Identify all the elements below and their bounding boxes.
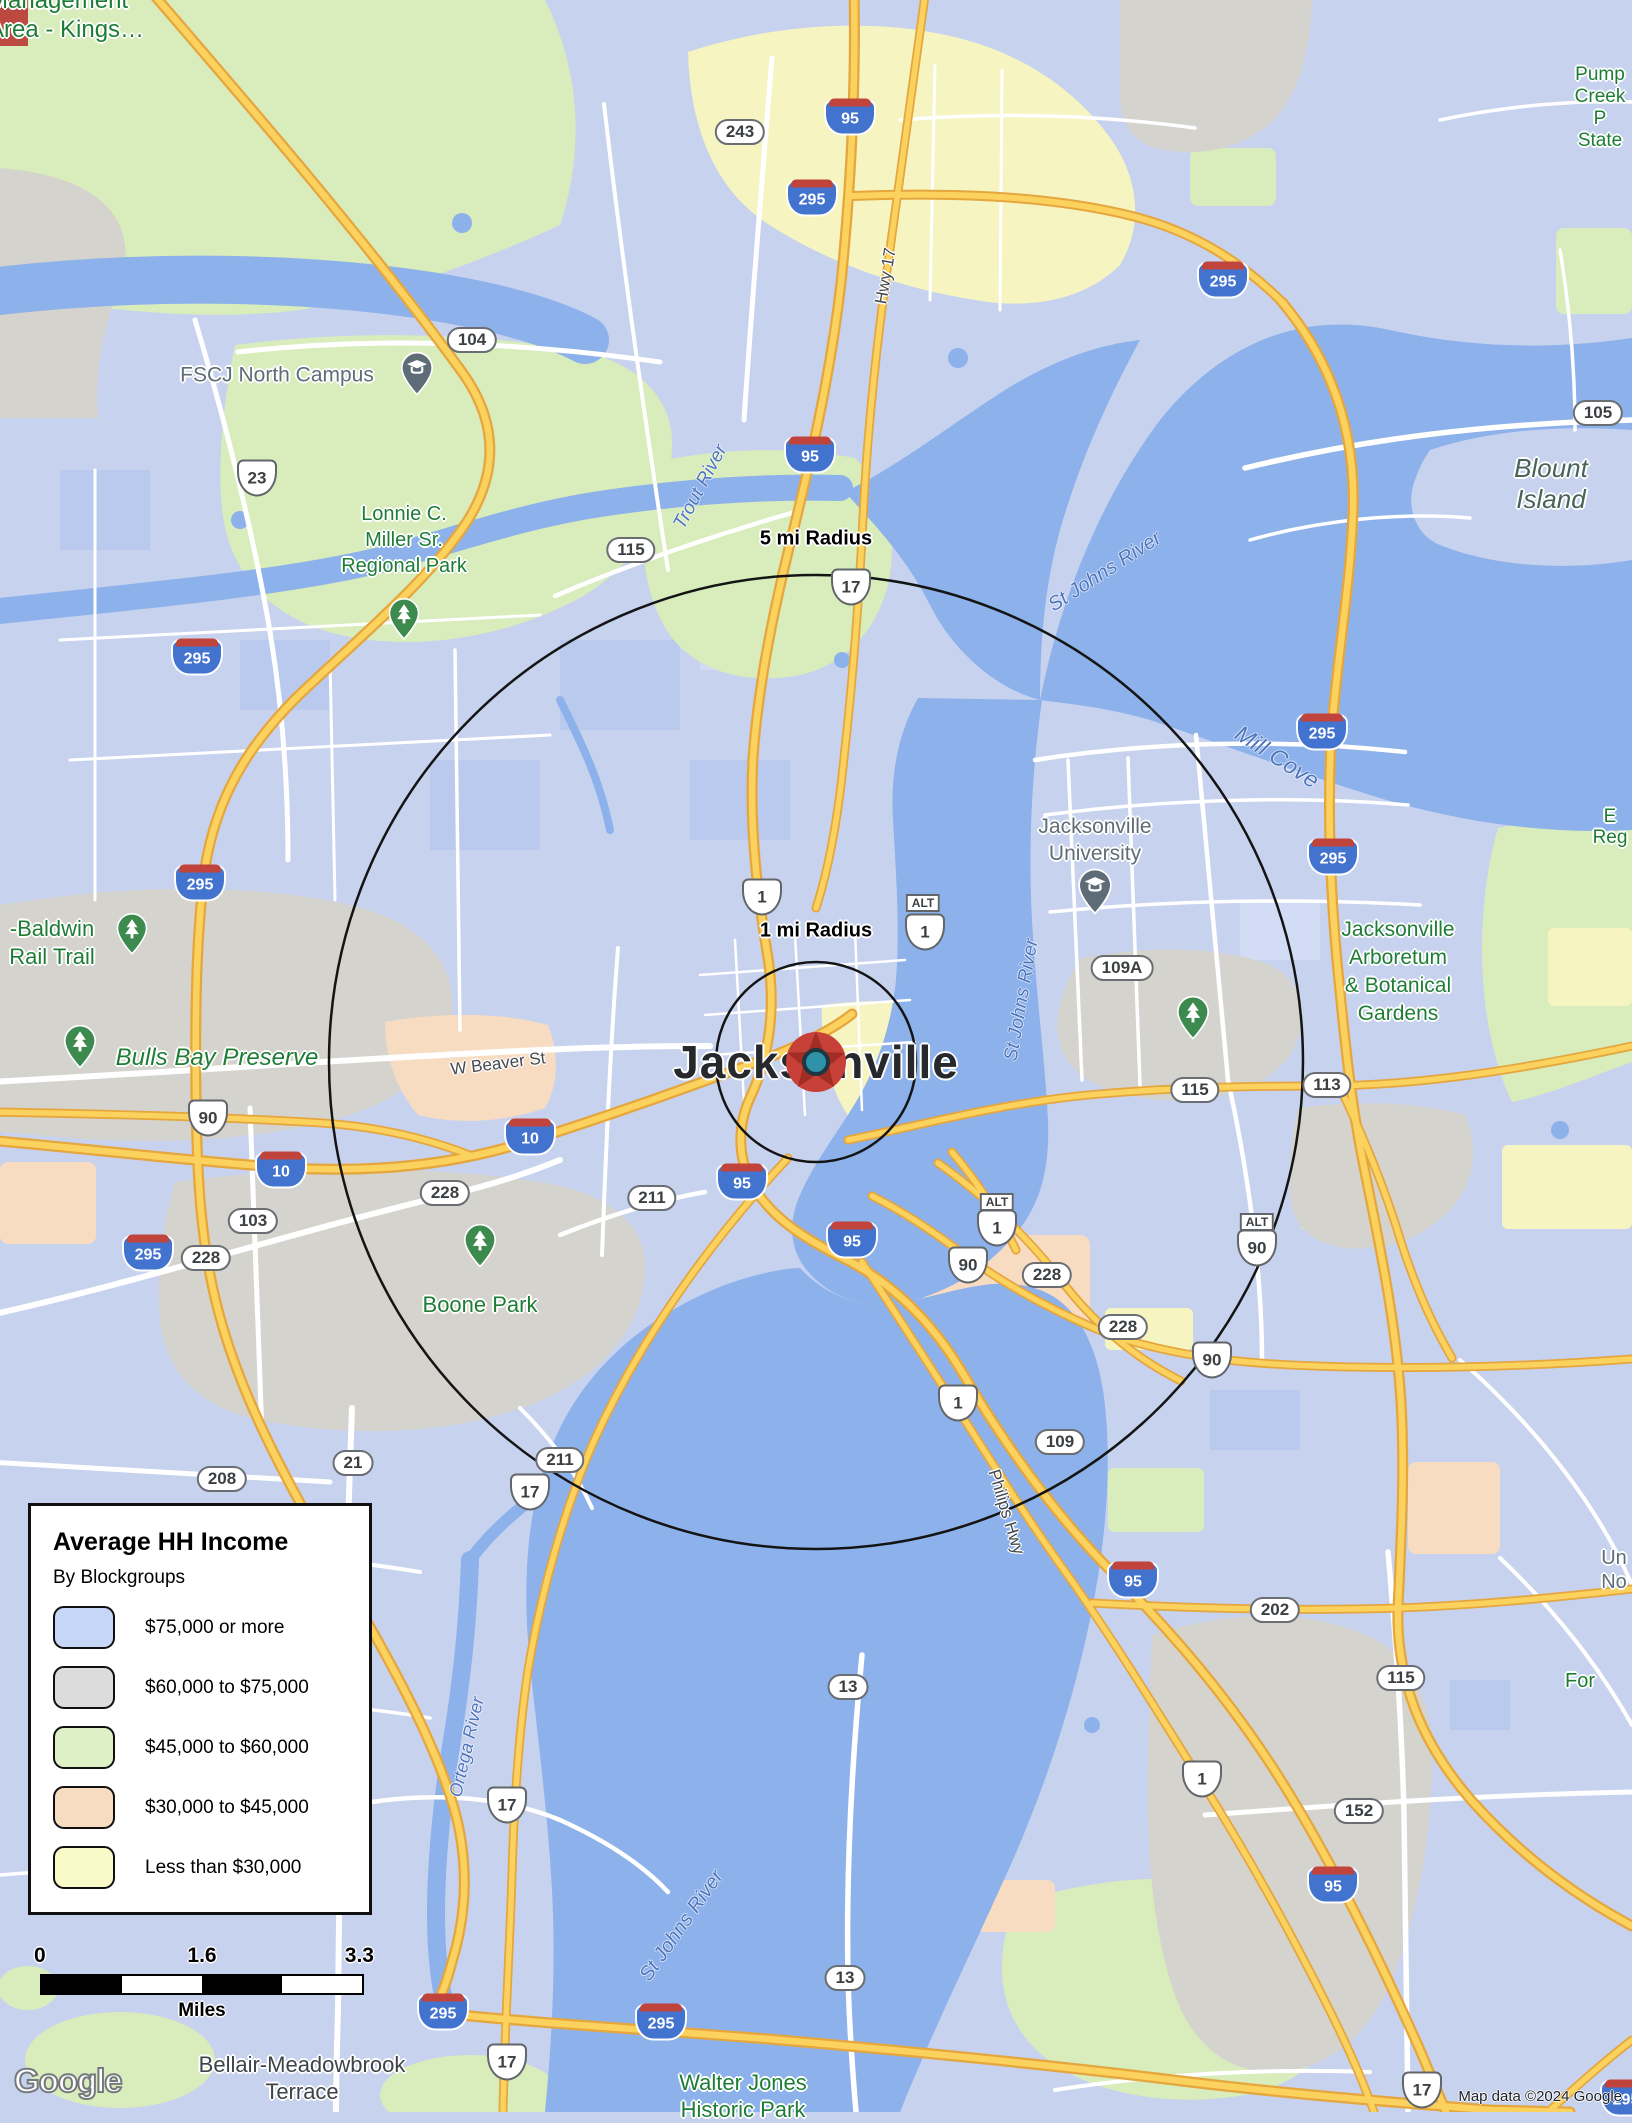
park-label-boone-park: Boone Park xyxy=(423,1292,538,1318)
scale-start: 0 xyxy=(34,1944,46,1968)
tree-pin xyxy=(63,1025,97,1069)
legend-title: Average HH Income xyxy=(53,1528,369,1557)
tree-pin xyxy=(116,913,148,955)
park-label-lonnie-miller-park: Lonnie C. Miller Sr. Regional Park xyxy=(341,501,467,579)
route-pill-113: 113 xyxy=(1302,1072,1351,1098)
legend-label: $45,000 to $60,000 xyxy=(145,1737,309,1759)
interstate-shield-295: 295 xyxy=(1199,264,1247,297)
legend-label: $30,000 to $45,000 xyxy=(145,1797,309,1819)
park-label-e-reg-fragment: E Reg xyxy=(1593,806,1628,848)
route-pill-243: 243 xyxy=(715,119,765,145)
legend: Average HH Income By Blockgroups $75,000… xyxy=(28,1503,372,1915)
route-pill-115: 115 xyxy=(1376,1665,1425,1691)
map-attribution: Map data ©2024 Google xyxy=(1458,2088,1622,2105)
alt-plaque: ALT xyxy=(906,894,940,912)
university-pin xyxy=(400,352,434,396)
park-label-walter-jones: Walter Jones Historic Park xyxy=(679,2069,807,2123)
legend-swatch xyxy=(53,1606,115,1649)
interstate-shield-95: 95 xyxy=(718,1166,766,1199)
scale-mid: 1.6 xyxy=(187,1944,216,1968)
tree-pin xyxy=(1176,996,1210,1040)
park-label-baldwin-rail-trail: -Baldwin Rail Trail xyxy=(9,915,95,971)
legend-row: $45,000 to $60,000 xyxy=(53,1726,369,1769)
interstate-shield-295: 295 xyxy=(788,182,836,215)
interstate-shield-295: 295 xyxy=(176,867,224,900)
route-pill-104: 104 xyxy=(447,327,497,353)
route-pill-105: 105 xyxy=(1573,400,1623,426)
scale-unit: Miles xyxy=(40,2000,364,2022)
google-logo[interactable]: Google xyxy=(14,2062,122,2100)
route-pill-211: 211 xyxy=(535,1447,584,1473)
interstate-shield-295: 295 xyxy=(124,1237,172,1270)
route-pill-228: 228 xyxy=(1098,1314,1148,1340)
radius-label-1mi: 1 mi Radius xyxy=(760,920,872,943)
legend-swatch xyxy=(53,1846,115,1889)
place-label-bellair-meadowbrook: Bellair-Meadowbrook Terrace xyxy=(199,2051,406,2105)
interstate-shield-95: 95 xyxy=(828,1224,876,1257)
route-pill-13: 13 xyxy=(828,1674,869,1700)
route-pill-208: 208 xyxy=(197,1466,247,1492)
legend-swatch xyxy=(53,1786,115,1829)
interstate-shield-95: 95 xyxy=(1109,1564,1157,1597)
legend-label: Less than $30,000 xyxy=(145,1857,301,1879)
legend-row: Less than $30,000 xyxy=(53,1846,369,1889)
interstate-shield-295: 295 xyxy=(173,641,221,674)
park-label-management-area: Management Area - Kings… xyxy=(0,0,144,44)
tree-pin xyxy=(388,598,420,640)
route-pill-109: 109 xyxy=(1035,1429,1085,1455)
interstate-shield-95: 95 xyxy=(1309,1869,1357,1902)
route-pill-228: 228 xyxy=(181,1245,231,1271)
interstate-shield-95: 95 xyxy=(826,101,874,134)
route-pill-228: 228 xyxy=(1022,1262,1072,1288)
university-pin xyxy=(1077,868,1113,914)
interstate-shield-10: 10 xyxy=(506,1121,554,1154)
map-canvas[interactable]: Trout River St Johns River Mill Cove St … xyxy=(0,0,1632,2112)
route-pill-228: 228 xyxy=(420,1180,470,1206)
interstate-shield-10: 10 xyxy=(257,1154,305,1187)
tree-pin xyxy=(463,1224,497,1268)
park-label-bulls-bay-preserve: Bulls Bay Preserve xyxy=(116,1044,319,1072)
center-marker xyxy=(782,1028,850,1096)
legend-row: $30,000 to $45,000 xyxy=(53,1786,369,1829)
alt-plaque: ALT xyxy=(1240,1213,1274,1231)
legend-swatch xyxy=(53,1726,115,1769)
legend-subtitle: By Blockgroups xyxy=(53,1567,369,1589)
legend-row: $60,000 to $75,000 xyxy=(53,1666,369,1709)
radius-label-5mi: 5 mi Radius xyxy=(760,528,872,551)
place-label-jacksonville-university: Jacksonville University xyxy=(1038,813,1151,867)
legend-row: $75,000 or more xyxy=(53,1606,369,1649)
alt-plaque: ALT xyxy=(980,1193,1014,1211)
route-pill-202: 202 xyxy=(1250,1597,1300,1623)
interstate-shield-295: 295 xyxy=(1309,841,1357,874)
interstate-shield-295: 295 xyxy=(419,1996,467,2029)
park-label-arboretum: Jacksonville Arboretum & Botanical Garde… xyxy=(1341,916,1454,1028)
route-pill-115: 115 xyxy=(1170,1077,1219,1103)
route-pill-13: 13 xyxy=(825,1965,866,1991)
route-pill-152: 152 xyxy=(1334,1798,1384,1824)
place-label-blount-island: Blount Island xyxy=(1511,453,1592,515)
route-pill-21: 21 xyxy=(333,1450,374,1476)
route-pill-109A: 109A xyxy=(1091,955,1154,981)
legend-label: $75,000 or more xyxy=(145,1617,284,1639)
place-label-fscj-north-campus: FSCJ North Campus xyxy=(180,362,374,389)
route-pill-211: 211 xyxy=(627,1185,676,1211)
legend-swatch xyxy=(53,1666,115,1709)
legend-label: $60,000 to $75,000 xyxy=(145,1677,309,1699)
route-pill-103: 103 xyxy=(228,1208,278,1234)
interstate-shield-95: 95 xyxy=(786,439,834,472)
scale-end: 3.3 xyxy=(345,1944,374,1968)
route-pill-115: 115 xyxy=(606,537,655,563)
interstate-shield-295: 295 xyxy=(637,2006,685,2039)
park-label-pumpkin-creek: Pump Creek P State xyxy=(1575,64,1626,152)
place-label-un-no-fragment: Un No xyxy=(1601,1546,1627,1594)
interstate-shield-295: 295 xyxy=(1298,716,1346,749)
park-label-for-fragment: For xyxy=(1565,1668,1595,1694)
scale-bar: 0 1.6 3.3 Miles xyxy=(40,1944,364,2022)
scale-bar-segments xyxy=(40,1974,364,1995)
